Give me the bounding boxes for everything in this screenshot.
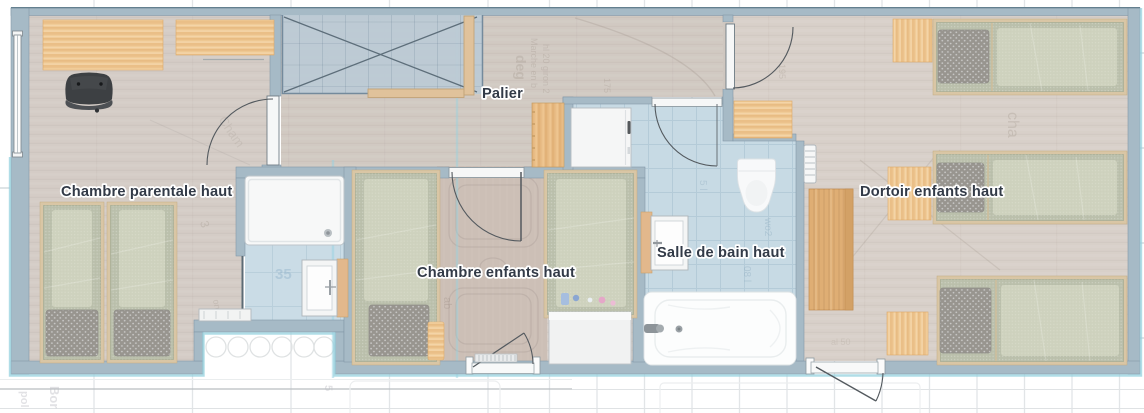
svg-text:5 l: 5 l — [697, 180, 708, 191]
svg-text:Palier: Palier — [482, 86, 523, 102]
svg-text:cha: cha — [1004, 112, 1021, 138]
svg-text:al 50: al 50 — [831, 337, 851, 347]
svg-text:Bor: Bor — [47, 386, 62, 408]
svg-text:hl 20 giron 2: hl 20 giron 2 — [541, 44, 551, 94]
svg-text:Dortoir enfants haut: Dortoir enfants haut — [860, 184, 1003, 200]
svg-text:Chambre enfants haut: Chambre enfants haut — [417, 265, 575, 281]
svg-text:pol: pol — [18, 391, 30, 408]
svg-text:175: 175 — [602, 78, 612, 93]
svg-text:wo2: wo2 — [762, 217, 773, 237]
svg-text:ab: ab — [441, 297, 453, 309]
svg-text:08 l: 08 l — [741, 266, 752, 282]
svg-text:deg: deg — [513, 55, 529, 80]
svg-text:Salle de bain haut: Salle de bain haut — [657, 245, 785, 261]
svg-text:Marche en b: Marche en b — [529, 38, 539, 88]
svg-text:35: 35 — [275, 266, 292, 283]
svg-text:5: 5 — [322, 385, 334, 391]
svg-text:Chambre parentale haut: Chambre parentale haut — [61, 184, 232, 200]
